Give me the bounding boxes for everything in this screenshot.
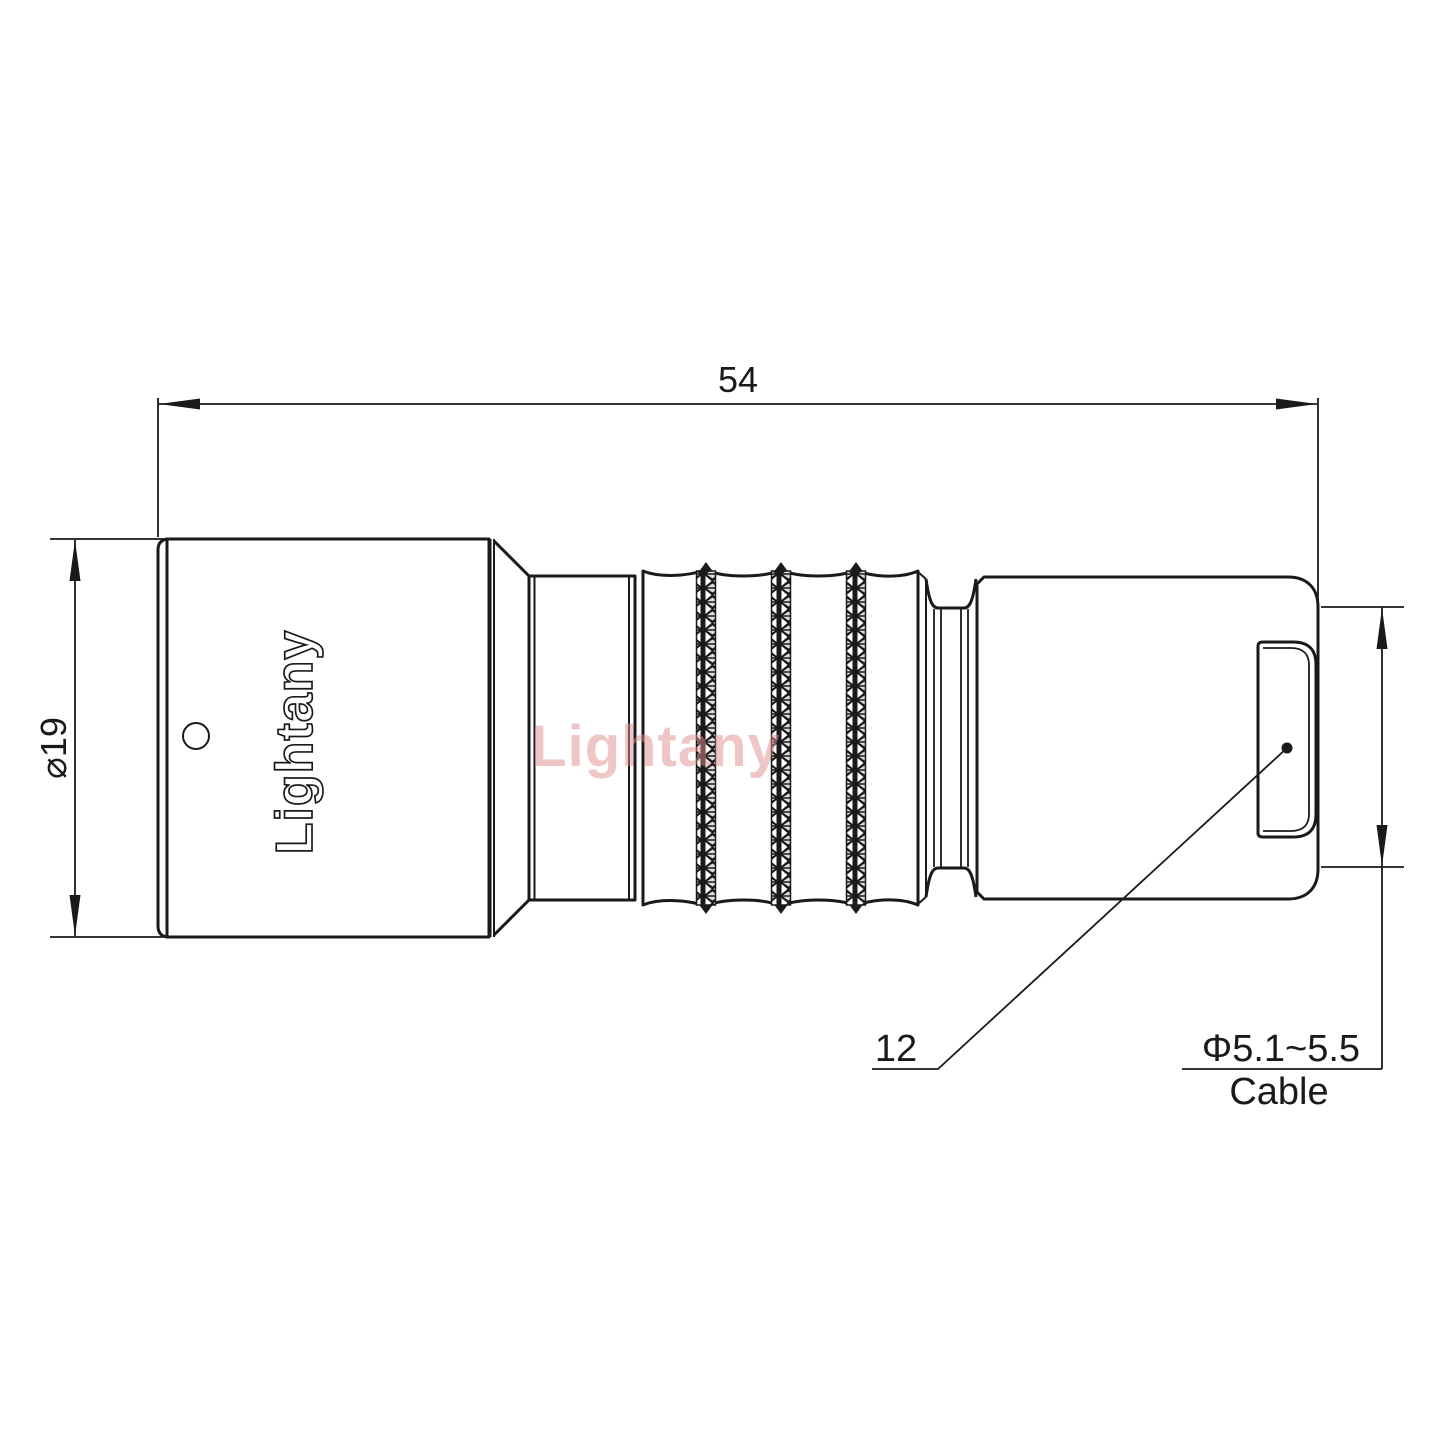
knurl-band [847,562,866,914]
dim-54-arrow-left [159,399,200,410]
cone-slant-lines [494,541,529,935]
dim-cable-arrow-bottom [1377,825,1388,866]
dim-54-arrow-right [1276,399,1317,410]
dim-54-value: 54 [718,359,758,400]
cable-caption-label: Cable [1229,1071,1328,1113]
taper-cone [490,539,529,937]
front-body-face [167,539,489,937]
leader-dot [1282,743,1293,754]
cable-diameter-label: Φ5.1~5.5 [1202,1028,1360,1070]
technical-drawing-page: Lightany [0,0,1440,1440]
rear-body-nut [977,577,1318,899]
neck-top-profile [926,579,976,608]
neck-groove [926,579,976,897]
dim-body-diameter: ⌀19 [33,539,167,937]
dim-cable-arrow-top [1377,608,1388,649]
dim-19-value: ⌀19 [33,717,74,779]
body-engraving-text: Lightany [266,630,324,855]
neck-bottom-profile [926,868,976,897]
watermark-text: Lightany [531,714,781,779]
dim-19-arrow-top [70,540,81,581]
dim-cable-extension-lines [1321,607,1404,867]
cable-bushing-outer [1258,642,1316,837]
neck-edge-lines [934,609,968,867]
label-12-value: 12 [875,1028,917,1070]
dim-19-arrow-bottom [70,895,81,936]
knurl-band-texture [847,571,866,905]
front-body-shell: Lightany [158,539,489,937]
connector-technical-drawing: Lightany [0,0,1440,1440]
